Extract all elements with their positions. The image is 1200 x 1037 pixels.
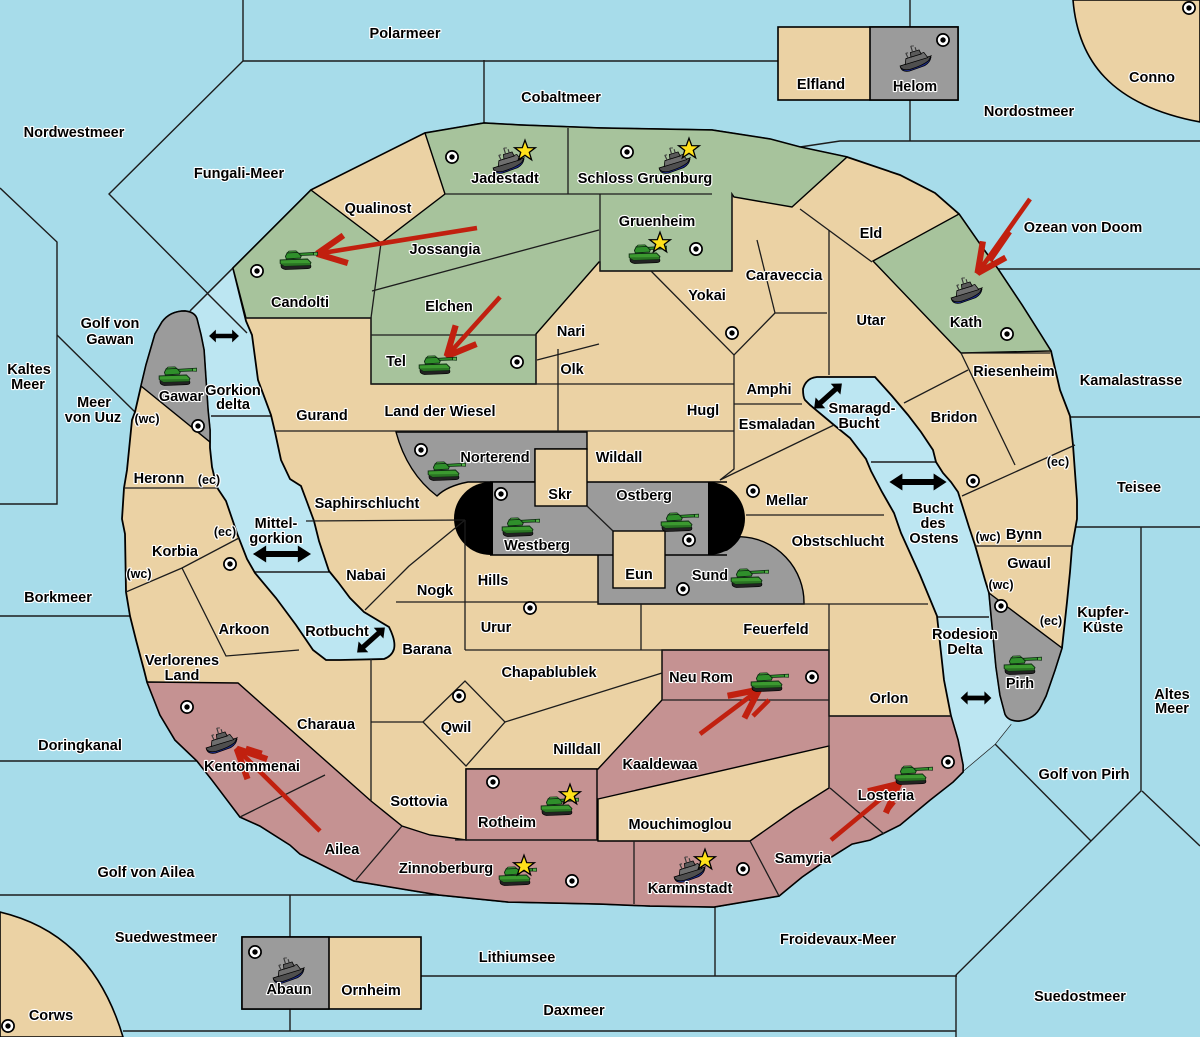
svg-text:Candolti: Candolti [271, 295, 329, 311]
svg-text:Verlorenes: Verlorenes [145, 653, 219, 669]
svg-text:Nogk: Nogk [417, 583, 454, 599]
svg-text:Zinnoberburg: Zinnoberburg [399, 861, 493, 877]
svg-text:Ostens: Ostens [909, 531, 958, 547]
svg-text:Mittel-: Mittel- [255, 516, 298, 532]
svg-text:Doringkanal: Doringkanal [38, 738, 122, 754]
svg-text:Mellar: Mellar [766, 493, 808, 509]
svg-text:(wc): (wc) [989, 578, 1014, 592]
svg-text:Eun: Eun [625, 567, 652, 583]
svg-text:Hugl: Hugl [687, 403, 719, 419]
svg-text:Gwaul: Gwaul [1007, 556, 1051, 572]
svg-text:Caraveccia: Caraveccia [746, 268, 824, 284]
svg-text:(ec): (ec) [214, 525, 236, 539]
svg-text:Kupfer-: Kupfer- [1077, 605, 1129, 621]
svg-text:Riesenheim: Riesenheim [973, 364, 1054, 380]
svg-text:Nabai: Nabai [346, 568, 386, 584]
svg-text:Esmaladan: Esmaladan [739, 417, 816, 433]
svg-text:(ec): (ec) [1040, 614, 1062, 628]
svg-text:Losteria: Losteria [858, 788, 915, 804]
svg-text:Gawan: Gawan [86, 332, 134, 348]
svg-text:(ec): (ec) [1047, 455, 1069, 469]
svg-text:Olk: Olk [560, 362, 584, 378]
svg-text:Barana: Barana [402, 642, 452, 658]
svg-text:Küste: Küste [1083, 620, 1123, 636]
svg-text:Nari: Nari [557, 324, 585, 340]
svg-text:Golf von: Golf von [81, 316, 140, 332]
svg-text:gorkion: gorkion [249, 531, 302, 547]
svg-text:Sottovia: Sottovia [390, 794, 448, 810]
svg-text:Wildall: Wildall [596, 450, 643, 466]
svg-text:Bynn: Bynn [1006, 527, 1042, 543]
svg-text:Polarmeer: Polarmeer [370, 26, 441, 42]
svg-text:Tel: Tel [386, 354, 406, 370]
svg-text:Golf von Pirh: Golf von Pirh [1038, 767, 1129, 783]
svg-text:Elfland: Elfland [797, 77, 845, 93]
svg-text:Delta: Delta [947, 642, 983, 658]
svg-text:Froidevaux-Meer: Froidevaux-Meer [780, 932, 896, 948]
svg-text:Orlon: Orlon [870, 691, 909, 707]
svg-text:Eld: Eld [860, 226, 883, 242]
svg-text:Amphi: Amphi [746, 382, 791, 398]
svg-text:Rotheim: Rotheim [478, 815, 536, 831]
svg-text:(wc): (wc) [135, 412, 160, 426]
svg-text:von Uuz: von Uuz [65, 410, 121, 426]
svg-text:Ailea: Ailea [325, 842, 361, 858]
svg-text:Hills: Hills [478, 573, 509, 589]
svg-text:Schloss Gruenburg: Schloss Gruenburg [578, 171, 713, 187]
svg-text:Mouchimoglou: Mouchimoglou [628, 817, 731, 833]
svg-text:Conno: Conno [1129, 70, 1175, 86]
svg-text:Yokai: Yokai [688, 288, 726, 304]
svg-text:Rotbucht: Rotbucht [305, 624, 369, 640]
svg-text:(wc): (wc) [976, 530, 1001, 544]
svg-text:Land: Land [165, 668, 200, 684]
svg-text:Kamalastrasse: Kamalastrasse [1080, 373, 1182, 389]
svg-text:Suedostmeer: Suedostmeer [1034, 989, 1126, 1005]
svg-text:Bucht: Bucht [838, 416, 879, 432]
svg-text:Nordostmeer: Nordostmeer [984, 104, 1075, 120]
svg-text:Qwil: Qwil [441, 720, 472, 736]
svg-text:Kath: Kath [950, 315, 982, 331]
svg-text:Corws: Corws [29, 1008, 73, 1024]
svg-text:Abaun: Abaun [266, 982, 311, 998]
svg-text:Fungali-Meer: Fungali-Meer [194, 166, 285, 182]
svg-text:Gawar: Gawar [159, 389, 204, 405]
svg-text:Kaltes: Kaltes [7, 362, 51, 378]
svg-text:Elchen: Elchen [425, 299, 473, 315]
svg-text:Bucht: Bucht [912, 501, 953, 517]
svg-text:Meer: Meer [77, 395, 111, 411]
svg-text:Samyria: Samyria [775, 851, 832, 867]
svg-text:Kaaldewaa: Kaaldewaa [623, 757, 699, 773]
svg-text:Meer: Meer [11, 377, 45, 393]
svg-text:Lithiumsee: Lithiumsee [479, 950, 556, 966]
svg-text:Daxmeer: Daxmeer [543, 1003, 605, 1019]
svg-text:Ostberg: Ostberg [616, 488, 672, 504]
svg-text:Bridon: Bridon [931, 410, 978, 426]
svg-text:Cobaltmeer: Cobaltmeer [521, 90, 601, 106]
svg-text:Charaua: Charaua [297, 717, 356, 733]
svg-text:Jossangia: Jossangia [410, 242, 482, 258]
svg-text:(ec): (ec) [198, 473, 220, 487]
svg-text:Ornheim: Ornheim [341, 983, 401, 999]
svg-text:Karminstadt: Karminstadt [648, 881, 733, 897]
svg-text:Ozean von Doom: Ozean von Doom [1024, 220, 1142, 236]
svg-text:Land der Wiesel: Land der Wiesel [384, 404, 495, 420]
svg-text:Sund: Sund [692, 568, 728, 584]
svg-text:Jadestadt: Jadestadt [471, 171, 539, 187]
svg-text:Suedwestmeer: Suedwestmeer [115, 930, 218, 946]
svg-text:Helom: Helom [893, 79, 937, 95]
svg-text:Teisee: Teisee [1117, 480, 1161, 496]
svg-text:Golf von Ailea: Golf von Ailea [98, 865, 196, 881]
svg-text:Gruenheim: Gruenheim [619, 214, 696, 230]
svg-text:Feuerfeld: Feuerfeld [743, 622, 808, 638]
svg-text:Saphirschlucht: Saphirschlucht [315, 496, 420, 512]
svg-text:(wc): (wc) [127, 567, 152, 581]
svg-text:delta: delta [216, 397, 251, 413]
svg-text:Korbia: Korbia [152, 544, 199, 560]
svg-text:Norterend: Norterend [460, 450, 529, 466]
svg-text:Westberg: Westberg [504, 538, 570, 554]
svg-text:Nilldall: Nilldall [553, 742, 601, 758]
svg-text:Borkmeer: Borkmeer [24, 590, 92, 606]
svg-text:Pirh: Pirh [1006, 676, 1034, 692]
svg-text:Utar: Utar [856, 313, 885, 329]
svg-text:Meer: Meer [1155, 701, 1189, 717]
svg-text:Nordwestmeer: Nordwestmeer [24, 125, 125, 141]
svg-text:Rodesion: Rodesion [932, 627, 998, 643]
svg-text:Skr: Skr [548, 487, 572, 503]
svg-text:Kentommenai: Kentommenai [204, 759, 300, 775]
svg-text:Neu Rom: Neu Rom [669, 670, 733, 686]
svg-text:Smaragd-: Smaragd- [829, 401, 896, 417]
svg-text:Heronn: Heronn [134, 471, 185, 487]
svg-text:Gurand: Gurand [296, 408, 348, 424]
svg-text:Urur: Urur [481, 620, 512, 636]
svg-text:Chapablublek: Chapablublek [501, 665, 597, 681]
svg-text:Qualinost: Qualinost [345, 201, 412, 217]
svg-text:des: des [921, 516, 946, 532]
svg-text:Obstschlucht: Obstschlucht [792, 534, 885, 550]
svg-text:Arkoon: Arkoon [219, 622, 270, 638]
